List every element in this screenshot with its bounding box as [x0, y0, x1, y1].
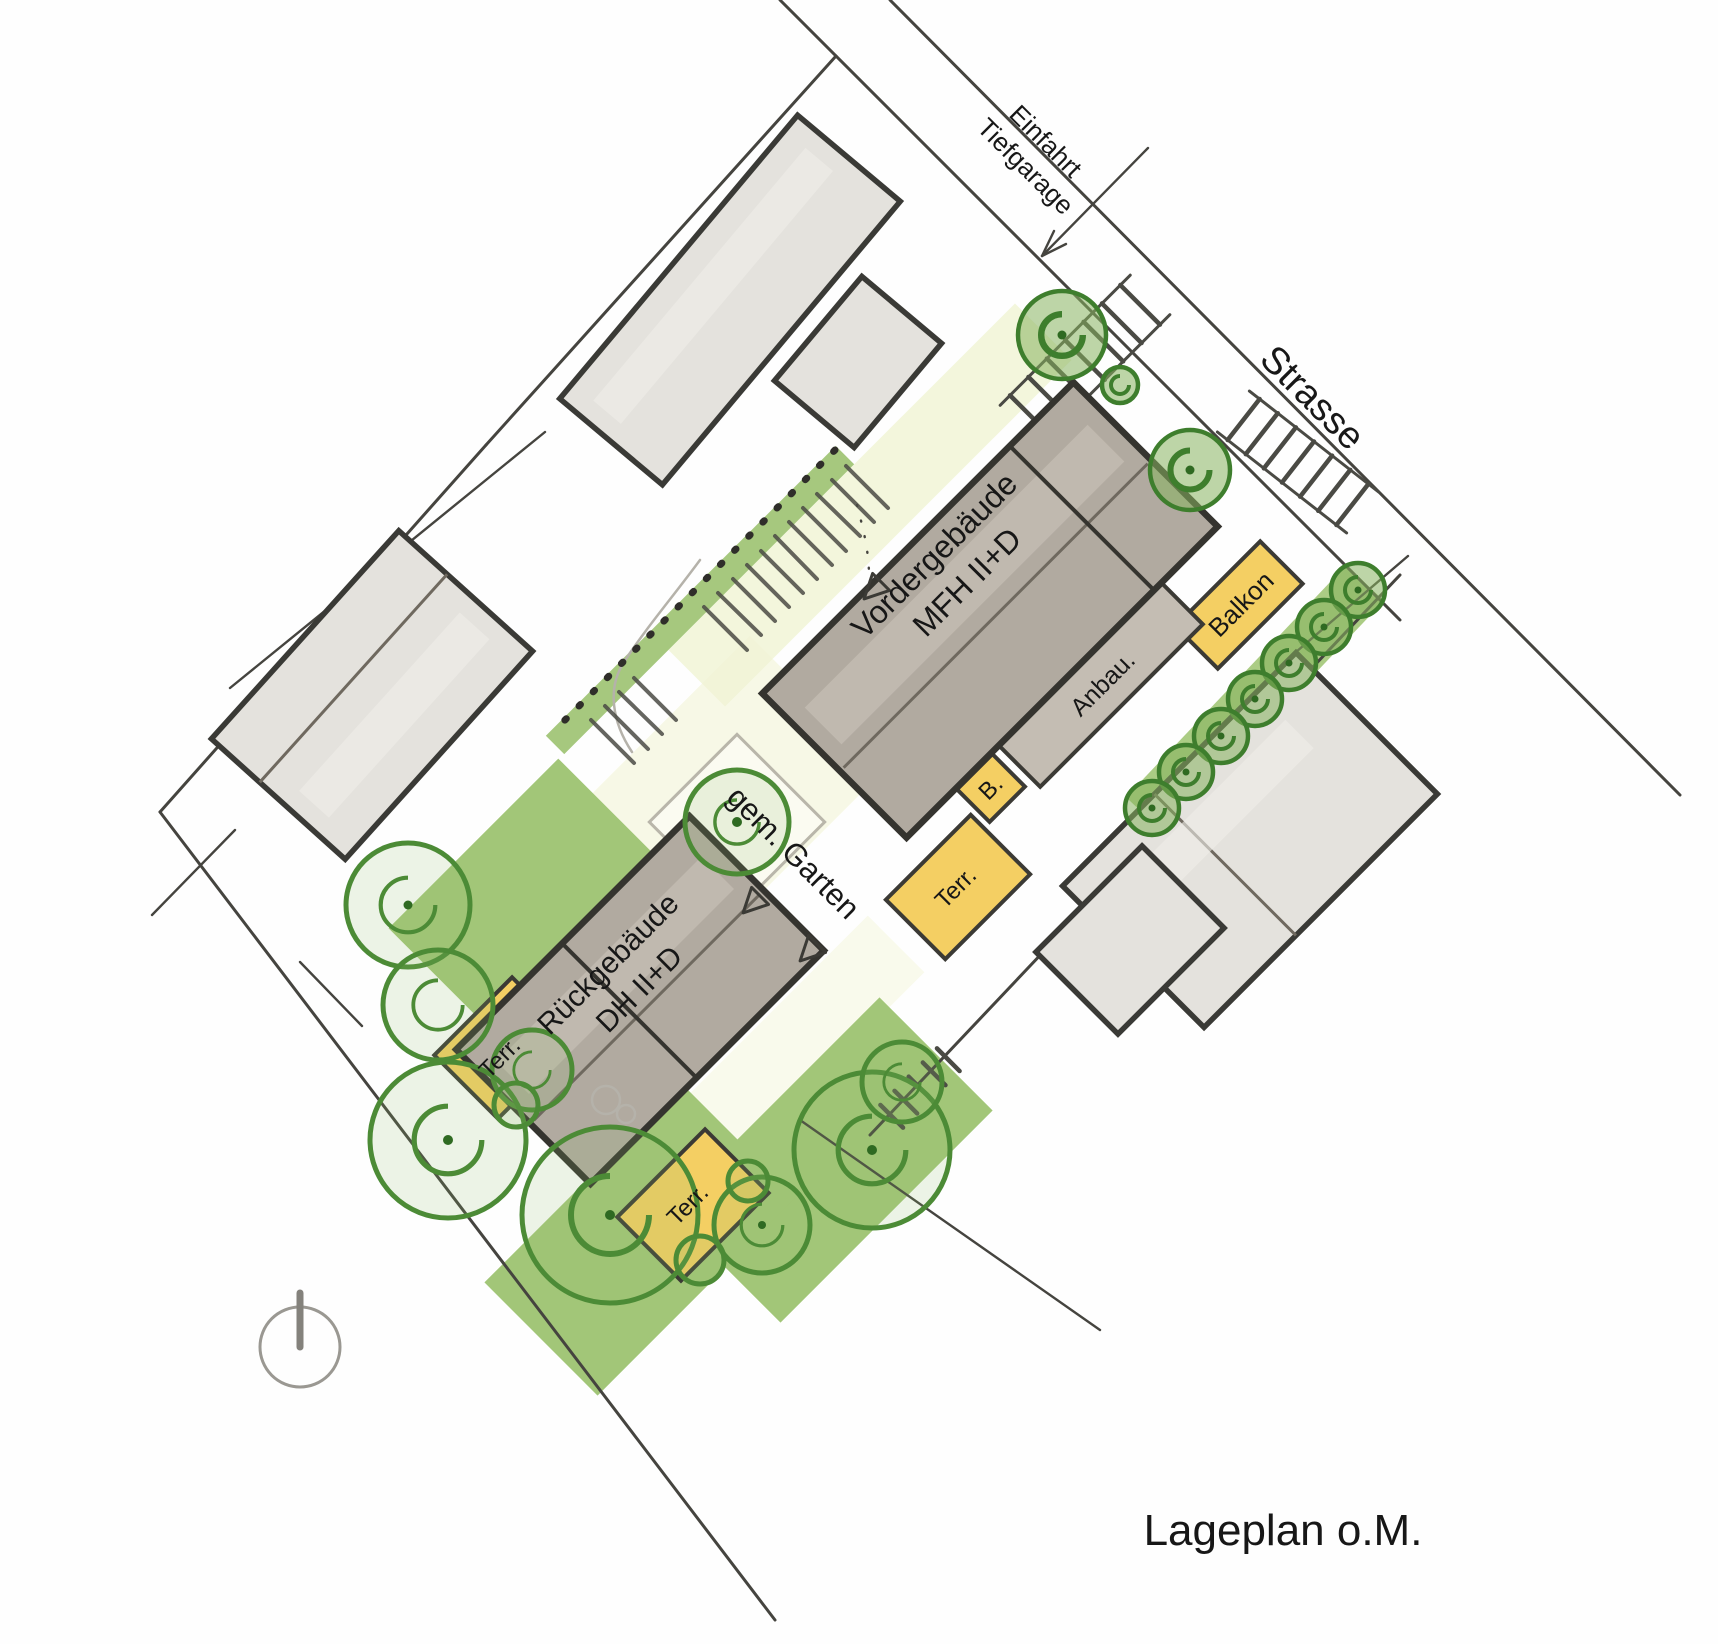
parcel-tick: [300, 962, 362, 1026]
neighbor-west-footprint: [211, 531, 532, 860]
neighbor-building-west: [211, 531, 532, 860]
hedge-bush: [1125, 781, 1179, 835]
site-plan-svg: Vordergebäude MFH II+D Rückgebäude DH II…: [0, 0, 1718, 1644]
tree: [383, 950, 493, 1060]
plan-title: Lageplan o.M.: [1144, 1506, 1423, 1555]
tree: [346, 843, 470, 967]
compass: [260, 1293, 340, 1387]
tree-small: [494, 1083, 538, 1127]
street-bush: [1102, 367, 1138, 403]
street-bush: [1150, 430, 1230, 510]
tree-small: [728, 1161, 768, 1201]
tree-small: [676, 1236, 724, 1284]
site-plan-page: Vordergebäude MFH II+D Rückgebäude DH II…: [0, 0, 1718, 1644]
tree: [862, 1042, 942, 1122]
street-bush: [1018, 291, 1106, 379]
parcel-line-left-lower: [152, 830, 235, 915]
garage-entrance-label: Einfahrt Tiefgarage: [972, 89, 1103, 220]
